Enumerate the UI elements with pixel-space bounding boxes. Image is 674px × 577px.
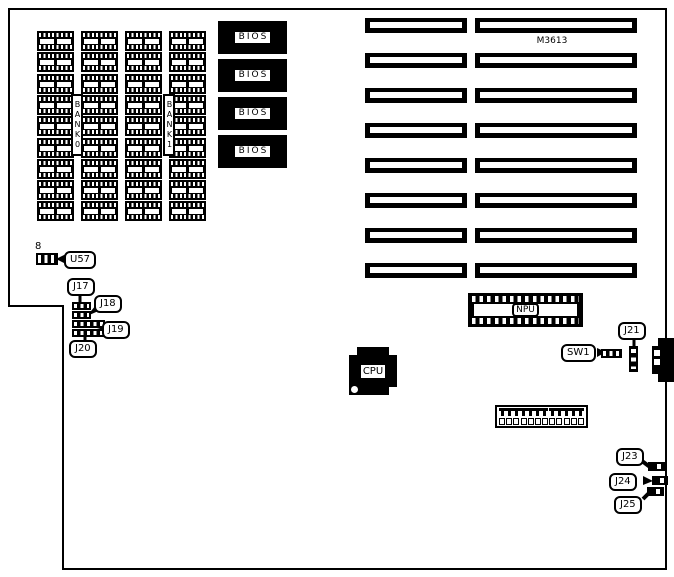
chip-window	[84, 82, 98, 87]
chip-pins-bottom	[83, 88, 116, 92]
chip-pins-top	[39, 118, 72, 122]
chip-pins-top	[127, 54, 160, 58]
power-pin	[541, 407, 548, 416]
cpu-socket: CPU	[349, 347, 397, 395]
expansion-slot-long	[475, 53, 637, 68]
chip-pins-top	[83, 182, 116, 186]
chip-pins-bottom	[83, 66, 116, 70]
power-pin	[563, 407, 570, 416]
callout-j24: J24	[609, 473, 637, 491]
chip-window	[145, 60, 159, 65]
j18-jumper-block	[72, 311, 91, 319]
chip-pins-bottom	[83, 152, 116, 156]
chip-window	[128, 209, 142, 214]
chip-window	[172, 82, 186, 87]
chip-window	[145, 167, 159, 172]
j23-jumper-block	[648, 462, 665, 471]
memory-chip-socket	[125, 201, 162, 221]
chip-pins-top	[171, 161, 204, 165]
chip-window	[128, 146, 142, 151]
memory-chip-socket	[169, 159, 206, 179]
j24-jumper-block	[652, 476, 668, 485]
chip-window	[101, 103, 115, 108]
memory-chip-socket	[125, 138, 162, 158]
callout-u57: U57	[64, 251, 96, 269]
chip-pins-bottom	[127, 173, 160, 177]
chip-pins-bottom	[127, 130, 160, 134]
chip-window	[128, 39, 142, 44]
j19-jumper-block-2	[72, 329, 105, 337]
chip-window	[84, 39, 98, 44]
power-pin	[549, 407, 556, 416]
chip-window	[101, 167, 115, 172]
j19-jumper-block	[72, 320, 105, 328]
chip-window	[128, 124, 142, 129]
chip-pins-bottom	[83, 173, 116, 177]
memory-chip-socket	[81, 52, 118, 72]
chip-pins-bottom	[39, 45, 72, 49]
chip-window	[101, 124, 115, 129]
chip-window	[189, 124, 203, 129]
slot-opening	[480, 232, 632, 238]
jumper-pins	[74, 313, 89, 317]
chip-window	[57, 82, 71, 87]
power-pin-hole	[549, 418, 555, 425]
chip-pins-bottom	[171, 130, 204, 134]
chip-window	[189, 167, 203, 172]
power-pin	[499, 407, 506, 416]
memory-chip-socket	[169, 31, 206, 51]
callout-j19: J19	[102, 321, 130, 339]
chip-window	[40, 103, 54, 108]
chip-pins-bottom	[127, 66, 160, 70]
chip-pins-top	[171, 203, 204, 207]
bios-chip: BIOS	[218, 21, 287, 54]
slot-opening	[370, 57, 462, 63]
bios-chip-label: BIOS	[235, 32, 271, 43]
expansion-slot-short	[365, 228, 467, 243]
chip-window	[172, 209, 186, 214]
chip-window	[189, 146, 203, 151]
chip-pins-bottom	[39, 173, 72, 177]
chip-pins-top	[39, 76, 72, 80]
power-pin-hole	[528, 418, 534, 425]
chip-window	[189, 209, 203, 214]
chip-pins-bottom	[127, 152, 160, 156]
chip-window	[84, 60, 98, 65]
chip-pins-top	[83, 161, 116, 165]
jumper-pin	[660, 478, 664, 483]
callout-j21: J21	[618, 322, 646, 340]
chip-window	[189, 103, 203, 108]
model-label: M3613	[516, 36, 588, 46]
chip-window	[57, 146, 71, 151]
power-pin-hole	[571, 418, 577, 425]
chip-window	[128, 103, 142, 108]
power-pin	[506, 407, 513, 416]
power-pin-hole	[542, 418, 548, 425]
power-hole-row	[499, 418, 584, 425]
chip-window	[84, 188, 98, 193]
cpu-corner-notch	[349, 347, 357, 355]
slot-opening	[480, 197, 632, 203]
chip-window	[57, 39, 71, 44]
memory-chip-socket	[37, 52, 74, 72]
slot-opening	[480, 92, 632, 98]
memory-chip-socket	[81, 159, 118, 179]
jumper-pins	[38, 255, 56, 263]
memory-chip-socket	[169, 201, 206, 221]
chip-pins-bottom	[171, 173, 204, 177]
expansion-slot-short	[365, 193, 467, 208]
power-pin	[527, 407, 534, 416]
switch-pins	[603, 351, 620, 356]
j21-pin-strip	[629, 346, 638, 372]
chip-pins-top	[171, 76, 204, 80]
chip-pins-bottom	[171, 66, 204, 70]
expansion-slot-short	[365, 158, 467, 173]
chip-pins-top	[127, 33, 160, 37]
callout-j23: J23	[616, 448, 644, 466]
chip-pins-bottom	[127, 109, 160, 113]
chip-pins-bottom	[39, 215, 72, 219]
callout-sw1: SW1	[561, 344, 596, 362]
chip-window	[57, 188, 71, 193]
bios-chip-label: BIOS	[235, 70, 271, 81]
chip-pins-top	[39, 182, 72, 186]
chip-window	[145, 188, 159, 193]
chip-window	[84, 146, 98, 151]
expansion-slot-long	[475, 193, 637, 208]
chip-window	[57, 103, 71, 108]
chip-window	[84, 103, 98, 108]
memory-chip-socket	[125, 116, 162, 136]
chip-window	[57, 209, 71, 214]
chip-pins-top	[83, 33, 116, 37]
chip-pins-bottom	[83, 194, 116, 198]
chip-pins-top	[171, 54, 204, 58]
memory-chip-socket	[81, 180, 118, 200]
chip-window	[189, 39, 203, 44]
power-pin-hole	[556, 418, 562, 425]
chip-window	[101, 146, 115, 151]
chip-pins-top	[39, 203, 72, 207]
slot-opening	[480, 127, 632, 133]
cpu-corner-notch	[389, 387, 397, 395]
chip-pins-bottom	[39, 109, 72, 113]
slot-opening	[370, 232, 462, 238]
motherboard-diagram: BANK0 BANK1 BIOSBIOSBIOSBIOS M3613 NPU C…	[0, 0, 674, 577]
memory-chip-socket	[37, 159, 74, 179]
chip-pins-top	[171, 182, 204, 186]
cpu-corner-notch	[389, 347, 397, 355]
chip-pins-top	[39, 97, 72, 101]
chip-window	[57, 60, 71, 65]
chip-window	[84, 167, 98, 172]
memory-chip-socket	[37, 116, 74, 136]
chip-pins-top	[83, 97, 116, 101]
chip-window	[101, 82, 115, 87]
callout-j25: J25	[614, 496, 642, 514]
chip-window	[172, 60, 186, 65]
power-pin-hole	[535, 418, 541, 425]
chip-window	[145, 124, 159, 129]
u57-jumper-block	[36, 253, 58, 265]
memory-chip-socket	[37, 180, 74, 200]
power-pin-hole	[564, 418, 570, 425]
chip-window	[189, 188, 203, 193]
chip-window	[40, 39, 54, 44]
memory-chip-socket	[81, 116, 118, 136]
memory-chip-socket	[37, 31, 74, 51]
j25-jumper-block	[647, 487, 664, 496]
chip-pins-top	[83, 203, 116, 207]
memory-chip-socket	[125, 180, 162, 200]
chip-pins-top	[83, 54, 116, 58]
memory-chip-socket	[169, 180, 206, 200]
expansion-slot-short	[365, 53, 467, 68]
chip-pins-bottom	[171, 109, 204, 113]
power-pin	[570, 407, 577, 416]
jumper-pins	[631, 349, 636, 369]
memory-chip-socket	[125, 74, 162, 94]
chip-window	[40, 124, 54, 129]
memory-chip-socket	[81, 31, 118, 51]
chip-pins-bottom	[83, 109, 116, 113]
keyboard-din-connector	[652, 338, 674, 382]
chip-window	[84, 124, 98, 129]
chip-pins-bottom	[127, 88, 160, 92]
bios-chip: BIOS	[218, 97, 287, 130]
chip-pins-bottom	[171, 88, 204, 92]
chip-pins-bottom	[127, 194, 160, 198]
memory-chip-socket	[125, 95, 162, 115]
cpu-pin1-dot	[351, 386, 358, 393]
chip-pins-top	[127, 76, 160, 80]
chip-pins-bottom	[171, 152, 204, 156]
slot-opening	[480, 57, 632, 63]
callout-j17: J17	[67, 278, 95, 296]
power-pin	[556, 407, 563, 416]
slot-opening	[370, 127, 462, 133]
slot-opening	[370, 92, 462, 98]
bank1-label: BANK1	[163, 94, 175, 156]
power-pin-hole	[578, 418, 584, 425]
jumper-pin	[657, 464, 661, 469]
chip-window	[84, 209, 98, 214]
memory-chip-socket	[81, 95, 118, 115]
power-pin-hole	[506, 418, 512, 425]
bios-chip-label: BIOS	[235, 108, 271, 119]
slot-opening	[480, 22, 632, 28]
chip-pins-top	[127, 140, 160, 144]
memory-chip-socket	[37, 138, 74, 158]
jumper-pins	[74, 322, 103, 326]
chip-pins-top	[39, 161, 72, 165]
npu-body: NPU	[474, 304, 577, 316]
chip-pins-top	[127, 118, 160, 122]
expansion-slot-short	[365, 88, 467, 103]
chip-pins-bottom	[39, 130, 72, 134]
bios-chip: BIOS	[218, 59, 287, 92]
chip-pins-top	[127, 161, 160, 165]
memory-chip-socket	[37, 95, 74, 115]
chip-pins-bottom	[127, 45, 160, 49]
slot-opening	[370, 197, 462, 203]
expansion-slot-short	[365, 123, 467, 138]
chip-window	[101, 39, 115, 44]
chip-window	[145, 209, 159, 214]
chip-pins-bottom	[39, 194, 72, 198]
chip-window	[145, 39, 159, 44]
chip-window	[172, 167, 186, 172]
power-pin	[534, 407, 541, 416]
chip-pins-top	[127, 182, 160, 186]
slot-opening	[480, 162, 632, 168]
chip-pins-top	[127, 203, 160, 207]
callout-j20: J20	[69, 340, 97, 358]
chip-window	[101, 188, 115, 193]
slot-opening	[370, 162, 462, 168]
chip-pins-top	[39, 33, 72, 37]
memory-chip-socket	[81, 138, 118, 158]
bank0-label: BANK0	[71, 94, 83, 156]
chip-window	[40, 209, 54, 214]
chip-pins-bottom	[39, 152, 72, 156]
chip-pins-top	[171, 97, 204, 101]
chip-window	[101, 60, 115, 65]
chip-pins-bottom	[39, 88, 72, 92]
power-pin-hole	[499, 418, 505, 425]
chip-pins-top	[39, 54, 72, 58]
chip-pins-bottom	[83, 45, 116, 49]
expansion-slot-long	[475, 263, 637, 278]
chip-window	[40, 188, 54, 193]
memory-chip-socket	[81, 201, 118, 221]
expansion-slot-long	[475, 228, 637, 243]
jumper-pin	[656, 489, 660, 494]
memory-chip-socket	[37, 201, 74, 221]
chip-pins-bottom	[83, 130, 116, 134]
chip-pins-top	[171, 33, 204, 37]
cpu-label: CPU	[361, 365, 385, 378]
din-pin-slot	[654, 359, 660, 365]
chip-window	[128, 167, 142, 172]
jumper-pins	[74, 331, 103, 335]
chip-window	[40, 82, 54, 87]
slot-opening	[480, 267, 632, 273]
chip-pins-top	[83, 140, 116, 144]
power-pin-hole	[513, 418, 519, 425]
memory-chip-socket	[125, 159, 162, 179]
bios-chip-label: BIOS	[235, 146, 271, 157]
chip-window	[172, 188, 186, 193]
expansion-slot-long	[475, 158, 637, 173]
power-pin	[520, 407, 527, 416]
npu-label: NPU	[512, 303, 539, 317]
npu-pins-bottom	[472, 318, 579, 324]
memory-chip-socket	[169, 74, 206, 94]
power-pin	[513, 407, 520, 416]
chip-window	[40, 167, 54, 172]
expansion-slot-short	[365, 18, 467, 33]
power-pin-row	[499, 407, 584, 416]
chip-window	[128, 188, 142, 193]
chip-window	[189, 82, 203, 87]
chip-pins-top	[127, 97, 160, 101]
slot-opening	[370, 22, 462, 28]
chip-window	[128, 82, 142, 87]
memory-chip-socket	[125, 52, 162, 72]
npu-pins-top	[472, 296, 579, 302]
jumper-pins	[74, 304, 89, 308]
chip-window	[128, 60, 142, 65]
npu-socket: NPU	[468, 293, 583, 327]
pin8-label: 8	[35, 241, 41, 252]
power-pin	[577, 407, 584, 416]
memory-chip-socket	[81, 74, 118, 94]
chip-window	[145, 146, 159, 151]
chip-window	[145, 103, 159, 108]
chip-window	[172, 39, 186, 44]
chip-pins-bottom	[171, 194, 204, 198]
power-pin-hole	[521, 418, 527, 425]
chip-window	[189, 60, 203, 65]
power-connector	[495, 405, 588, 428]
chip-pins-bottom	[127, 215, 160, 219]
chip-pins-bottom	[83, 215, 116, 219]
din-pin-slot	[654, 350, 660, 356]
chip-pins-top	[83, 118, 116, 122]
chip-window	[145, 82, 159, 87]
chip-pins-bottom	[171, 215, 204, 219]
chip-pins-top	[171, 140, 204, 144]
memory-chip-socket	[125, 31, 162, 51]
chip-pins-bottom	[171, 45, 204, 49]
memory-chip-socket	[169, 52, 206, 72]
expansion-slot-long	[475, 88, 637, 103]
slot-opening	[370, 267, 462, 273]
chip-window	[101, 209, 115, 214]
expansion-slot-short	[365, 263, 467, 278]
chip-window	[40, 146, 54, 151]
sw1-switch-block	[601, 349, 622, 358]
expansion-slot-long	[475, 18, 637, 33]
chip-pins-bottom	[39, 66, 72, 70]
chip-pins-top	[171, 118, 204, 122]
j17-jumper-block	[72, 302, 91, 310]
bios-chip: BIOS	[218, 135, 287, 168]
chip-window	[40, 60, 54, 65]
memory-chip-socket	[37, 74, 74, 94]
chip-window	[57, 167, 71, 172]
expansion-slot-long	[475, 123, 637, 138]
chip-pins-top	[83, 76, 116, 80]
callout-j18: J18	[94, 295, 122, 313]
chip-pins-top	[39, 140, 72, 144]
chip-window	[57, 124, 71, 129]
